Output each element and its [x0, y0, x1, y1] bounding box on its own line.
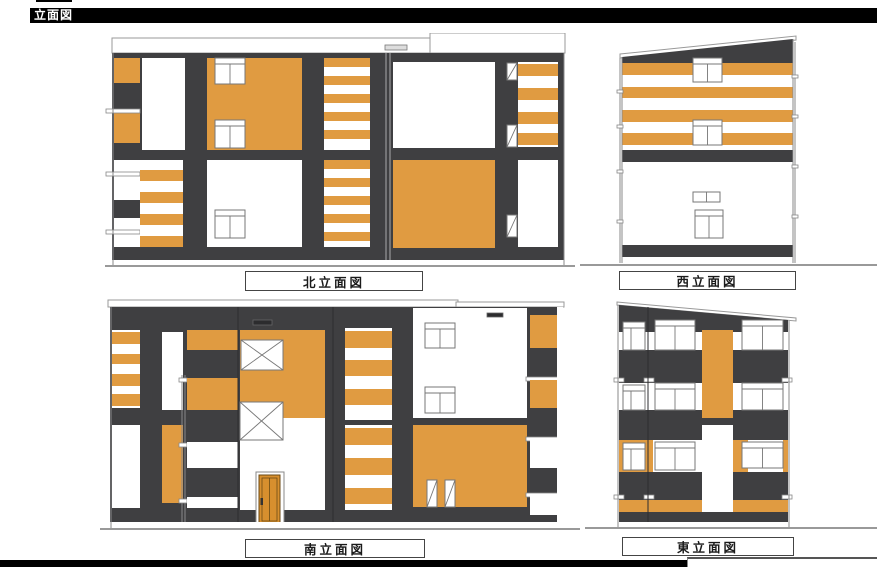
- window: [425, 323, 455, 348]
- page-top-remnant: [36, 0, 72, 2]
- north-elevation-drawing: [105, 33, 575, 273]
- window: [623, 385, 645, 410]
- north-elevation-label: 北立面図: [245, 271, 423, 291]
- window: [693, 58, 722, 82]
- window: [623, 443, 645, 470]
- window: [655, 383, 695, 410]
- south-elevation-label-text: 南立面図: [304, 539, 366, 558]
- section-header: 立面図: [30, 8, 877, 23]
- louver-window: [507, 215, 517, 237]
- page-title: 立面図: [34, 8, 73, 22]
- window: [695, 210, 723, 238]
- window: [425, 387, 455, 413]
- roof-vent: [385, 45, 407, 50]
- west-elevation-drawing: [580, 30, 877, 272]
- window: [215, 120, 245, 148]
- window: [693, 120, 722, 145]
- window: [742, 320, 783, 350]
- louver-window: [427, 480, 437, 507]
- north-parapet-left: [112, 38, 432, 53]
- wall-vent: [487, 313, 503, 317]
- louver-window: [507, 63, 517, 80]
- wall-vent: [253, 320, 272, 325]
- window: [655, 442, 695, 470]
- fix-window: [240, 402, 283, 440]
- window: [655, 320, 695, 350]
- south-elevation-label: 南立面図: [245, 539, 425, 558]
- window: [742, 383, 783, 410]
- window: [623, 322, 645, 350]
- bottom-section-bar: [0, 560, 693, 567]
- east-elevation-label-text: 東立面図: [677, 537, 739, 556]
- west-elevation-label: 西立面図: [619, 271, 796, 290]
- window: [742, 442, 783, 468]
- louver-window: [445, 480, 455, 507]
- south-elevation-drawing: [100, 295, 580, 542]
- fix-window: [241, 340, 283, 370]
- small-window: [693, 192, 720, 202]
- bottom-right-box: [687, 557, 877, 567]
- east-elevation-drawing: [585, 295, 877, 540]
- north-parapet-right: [430, 33, 565, 53]
- window: [215, 58, 245, 84]
- east-elevation-label: 東立面図: [622, 537, 794, 556]
- north-elevation-label-text: 北立面図: [303, 272, 365, 291]
- entrance-door: [256, 472, 284, 526]
- door-handle: [261, 498, 264, 505]
- west-elevation-label-text: 西立面図: [676, 271, 738, 290]
- window: [215, 210, 245, 238]
- louver-window: [507, 125, 517, 147]
